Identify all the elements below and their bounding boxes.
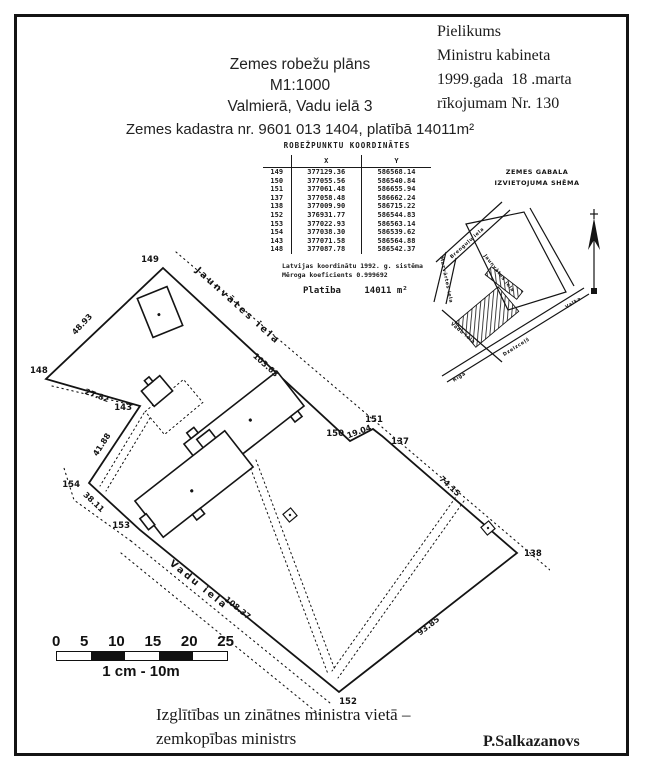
dimension-label: 19.04 (346, 423, 373, 440)
dimension-label: 48.93 (70, 312, 94, 337)
street-label: Vadu iela (167, 558, 230, 612)
north-arrow-icon (588, 209, 600, 294)
table-header-row: X Y (263, 155, 431, 168)
table-row: 153377022.93586563.14 (263, 220, 431, 229)
scale-segment (91, 652, 125, 660)
point-id: 154 (263, 228, 291, 237)
scale-segment (125, 652, 159, 660)
scale-segment (159, 652, 193, 660)
table-row: 154377038.30586539.62 (263, 228, 431, 237)
annex-line: 1999.gada 18 .marta (437, 68, 627, 92)
plan-title: Zemes robežu plāns (120, 54, 480, 75)
col-point (263, 155, 291, 168)
building (138, 371, 173, 406)
plan-address: Valmierā, Vadu ielā 3 (120, 96, 480, 117)
point-label: 138 (524, 549, 542, 559)
footer-line: Izglītības un zinātnes ministra vietā – (156, 703, 410, 727)
building (137, 287, 182, 338)
scalebar-segments (56, 651, 228, 661)
coord-x: 377129.36 (291, 168, 361, 177)
scale-bar: 0510152025 1 cm - 10m (52, 633, 236, 680)
table-row: 149377129.36586568.14 (263, 168, 431, 177)
point-id: 138 (263, 202, 291, 211)
point-id: 153 (263, 220, 291, 229)
scale-tick: 5 (80, 633, 88, 650)
scale-tick: 25 (217, 633, 234, 650)
dimension-label: 41.88 (91, 431, 113, 457)
dimension-label: 38.11 (81, 490, 106, 514)
scale-tick: 20 (181, 633, 198, 650)
document-page: Zemes robežu plāns M1:1000 Valmierā, Vad… (0, 0, 645, 770)
annex-line: Pielikums (437, 20, 627, 44)
coord-x: 377022.93 (291, 220, 361, 229)
point-label: 153 (112, 521, 130, 531)
col-y: Y (361, 155, 431, 168)
street-label: Jaunvātes iela (192, 264, 282, 347)
scalebar-ticks: 0510152025 (52, 633, 234, 650)
point-label: 148 (30, 366, 48, 376)
point-id: 151 (263, 185, 291, 194)
point-label: 143 (114, 403, 132, 413)
annex-line: rīkojumam Nr. 130 (437, 92, 627, 116)
scale-tick: 0 (52, 633, 60, 650)
signature-name: P.Salkazanovs (483, 733, 580, 751)
point-label: 154 (62, 480, 80, 490)
scale-segment (193, 652, 227, 660)
point-label: 149 (141, 255, 159, 265)
coord-y: 586563.14 (361, 220, 431, 229)
scale-tick: 10 (108, 633, 125, 650)
coord-y: 586544.83 (361, 211, 431, 220)
point-id: 152 (263, 211, 291, 220)
coord-x: 377055.56 (291, 177, 361, 186)
dimension-label: 93.85 (416, 614, 442, 637)
coord-y: 586539.62 (361, 228, 431, 237)
scheme-title: ZEMES GABALA (506, 168, 569, 176)
annex-line: Ministru kabineta (437, 44, 627, 68)
annex-block: Pielikums Ministru kabineta 1999.gada 18… (437, 20, 627, 116)
title-block: Zemes robežu plāns M1:1000 Valmierā, Vad… (120, 54, 480, 140)
col-x: X (291, 155, 361, 168)
coord-x: 377058.48 (291, 194, 361, 203)
point-label: 137 (391, 437, 409, 447)
coord-x: 377038.30 (291, 228, 361, 237)
coord-x: 377061.48 (291, 185, 361, 194)
coord-y: 586655.94 (361, 185, 431, 194)
coord-y: 586715.22 (361, 202, 431, 211)
table-row: 150377055.56586540.84 (263, 177, 431, 186)
scale-segment (57, 652, 91, 660)
scale-tick: 15 (144, 633, 161, 650)
coord-x: 377009.90 (291, 202, 361, 211)
scale-caption: 1 cm - 10m (52, 663, 230, 680)
footer-line: zemkopības ministrs (156, 727, 410, 751)
table-title: ROBEŽPUNKTU KOORDINĀTES (258, 141, 436, 150)
point-id: 137 (263, 194, 291, 203)
dimension-label: 103.63 (251, 351, 280, 378)
coordinates-table: ROBEŽPUNKTU KOORDINĀTES X Y 149377129.36… (258, 141, 436, 254)
dimension-label: 27.82 (83, 387, 110, 404)
coord-x: 376931.77 (291, 211, 361, 220)
table-row: 138377009.90586715.22 (263, 202, 431, 211)
plan-scale: M1:1000 (120, 75, 480, 96)
coord-y: 586540.84 (361, 177, 431, 186)
coord-y: 586568.14 (361, 168, 431, 177)
coord-y: 586662.24 (361, 194, 431, 203)
point-id: 149 (263, 168, 291, 177)
point-id: 150 (263, 177, 291, 186)
table-row: 152376931.77586544.83 (263, 211, 431, 220)
dimension-label: 108.37 (223, 595, 253, 621)
utility-symbol (283, 508, 297, 522)
point-label: 150 (326, 429, 344, 439)
footer-text: Izglītības un zinātnes ministra vietā – … (156, 703, 410, 751)
cadastre-number: Zemes kadastra nr. 9601 013 1404, platīb… (120, 119, 480, 140)
table-row: 151377061.48586655.94 (263, 185, 431, 194)
scheme-title: IZVIETOJUMA SHĒMA (495, 178, 580, 187)
table-row: 137377058.48586662.24 (263, 194, 431, 203)
